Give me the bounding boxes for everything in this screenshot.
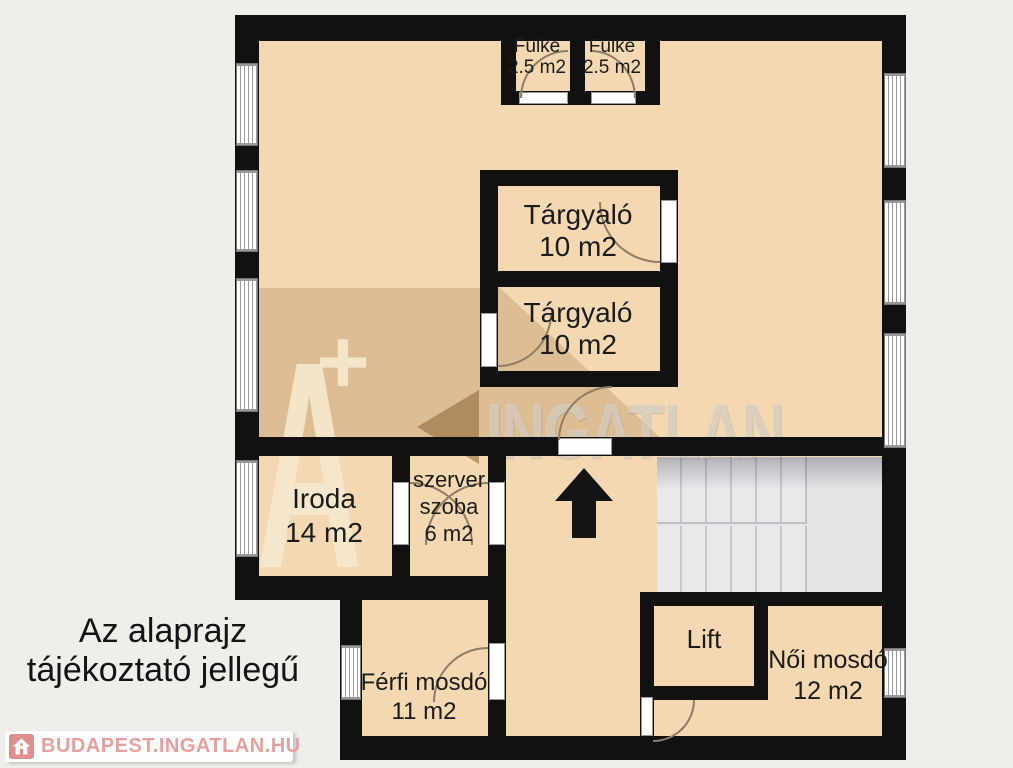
window-right-3 xyxy=(884,333,906,448)
wall-lift-right xyxy=(754,592,768,700)
wall-lift-bottom xyxy=(640,686,768,700)
room-area: 6 m2 xyxy=(413,520,485,547)
wall-lift-top xyxy=(640,592,906,606)
window-right-1 xyxy=(884,73,906,168)
footer-logo: BUDAPEST.INGATLAN.HU xyxy=(5,731,293,762)
room-area: 14 m2 xyxy=(285,516,363,550)
door-szerver-right xyxy=(489,482,505,545)
room-name-line1: szerver xyxy=(413,466,485,493)
room-label-szerver-szoba: szerver szoba 6 m2 xyxy=(413,466,485,547)
room-area: 2.5 m2 xyxy=(508,57,566,78)
room-name: Tárgyaló xyxy=(524,297,633,329)
room-area: 12 m2 xyxy=(768,676,888,707)
room-name: Iroda xyxy=(285,482,363,516)
footer-brand-text: BUDAPEST.INGATLAN.HU xyxy=(41,734,301,759)
door-ferfi-mosdo xyxy=(489,643,505,700)
disclaimer-text: Az alaprajz tájékoztató jellegű xyxy=(4,612,322,690)
room-label-noi-mosdo: Női mosdó 12 m2 xyxy=(768,645,888,707)
disclaimer-line1: Az alaprajz xyxy=(4,612,322,651)
window-left-3 xyxy=(236,278,258,412)
door-hall xyxy=(558,438,612,455)
room-label-lift: Lift xyxy=(687,624,722,654)
room-name: Fülke xyxy=(508,36,566,57)
room-label-iroda: Iroda 14 m2 xyxy=(285,482,363,550)
house-icon-glyph xyxy=(12,737,31,756)
room-area: 2.5 m2 xyxy=(583,57,641,78)
window-iroda xyxy=(236,460,258,557)
room-area: 10 m2 xyxy=(524,231,633,263)
window-ferfi-mosdo xyxy=(341,645,361,700)
wall-outer-bottom xyxy=(340,736,906,760)
room-name: Fülke xyxy=(583,36,641,57)
door-szerver-left xyxy=(393,482,409,545)
room-area: 11 m2 xyxy=(361,697,488,726)
wall-targyalo-top xyxy=(480,170,678,186)
wall-targyalo-bottom xyxy=(480,371,678,387)
room-name: Női mosdó xyxy=(768,645,888,676)
room-name: Tárgyaló xyxy=(524,199,633,231)
room-name: Lift xyxy=(687,624,722,654)
room-label-targyalo-1: Tárgyaló 10 m2 xyxy=(524,199,633,263)
door-targyalo-2 xyxy=(481,313,497,367)
up-arrow-icon xyxy=(555,468,613,538)
watermark-brand: INGATLAN xyxy=(486,394,783,468)
window-left-1 xyxy=(236,63,258,146)
room-name-line2: szoba xyxy=(413,493,485,520)
wall-outer-top xyxy=(235,15,906,41)
room-label-fulke-1: Fülke 2.5 m2 xyxy=(508,36,566,78)
door-targyalo-1 xyxy=(661,200,677,263)
staircase xyxy=(657,457,882,592)
room-label-targyalo-2: Tárgyaló 10 m2 xyxy=(524,297,633,361)
wall-targyalo-mid xyxy=(480,271,678,287)
stairs-shadow xyxy=(657,457,882,592)
window-right-2 xyxy=(884,200,906,305)
room-label-ferfi-mosdo: Férfi mosdó 11 m2 xyxy=(361,668,488,726)
disclaimer-line2: tájékoztató jellegű xyxy=(4,651,322,690)
house-icon xyxy=(9,734,34,759)
wall-iroda-bottom xyxy=(235,576,506,600)
window-left-2 xyxy=(236,170,258,252)
watermark-plus: + xyxy=(316,326,370,400)
room-area: 10 m2 xyxy=(524,329,633,361)
door-lift-lobby xyxy=(641,697,653,736)
room-label-fulke-2: Fülke 2.5 m2 xyxy=(583,36,641,78)
floorplan-page: { "rooms": { "fulke1": {"name": "Fülke",… xyxy=(0,0,1013,768)
room-name: Férfi mosdó xyxy=(361,668,488,697)
